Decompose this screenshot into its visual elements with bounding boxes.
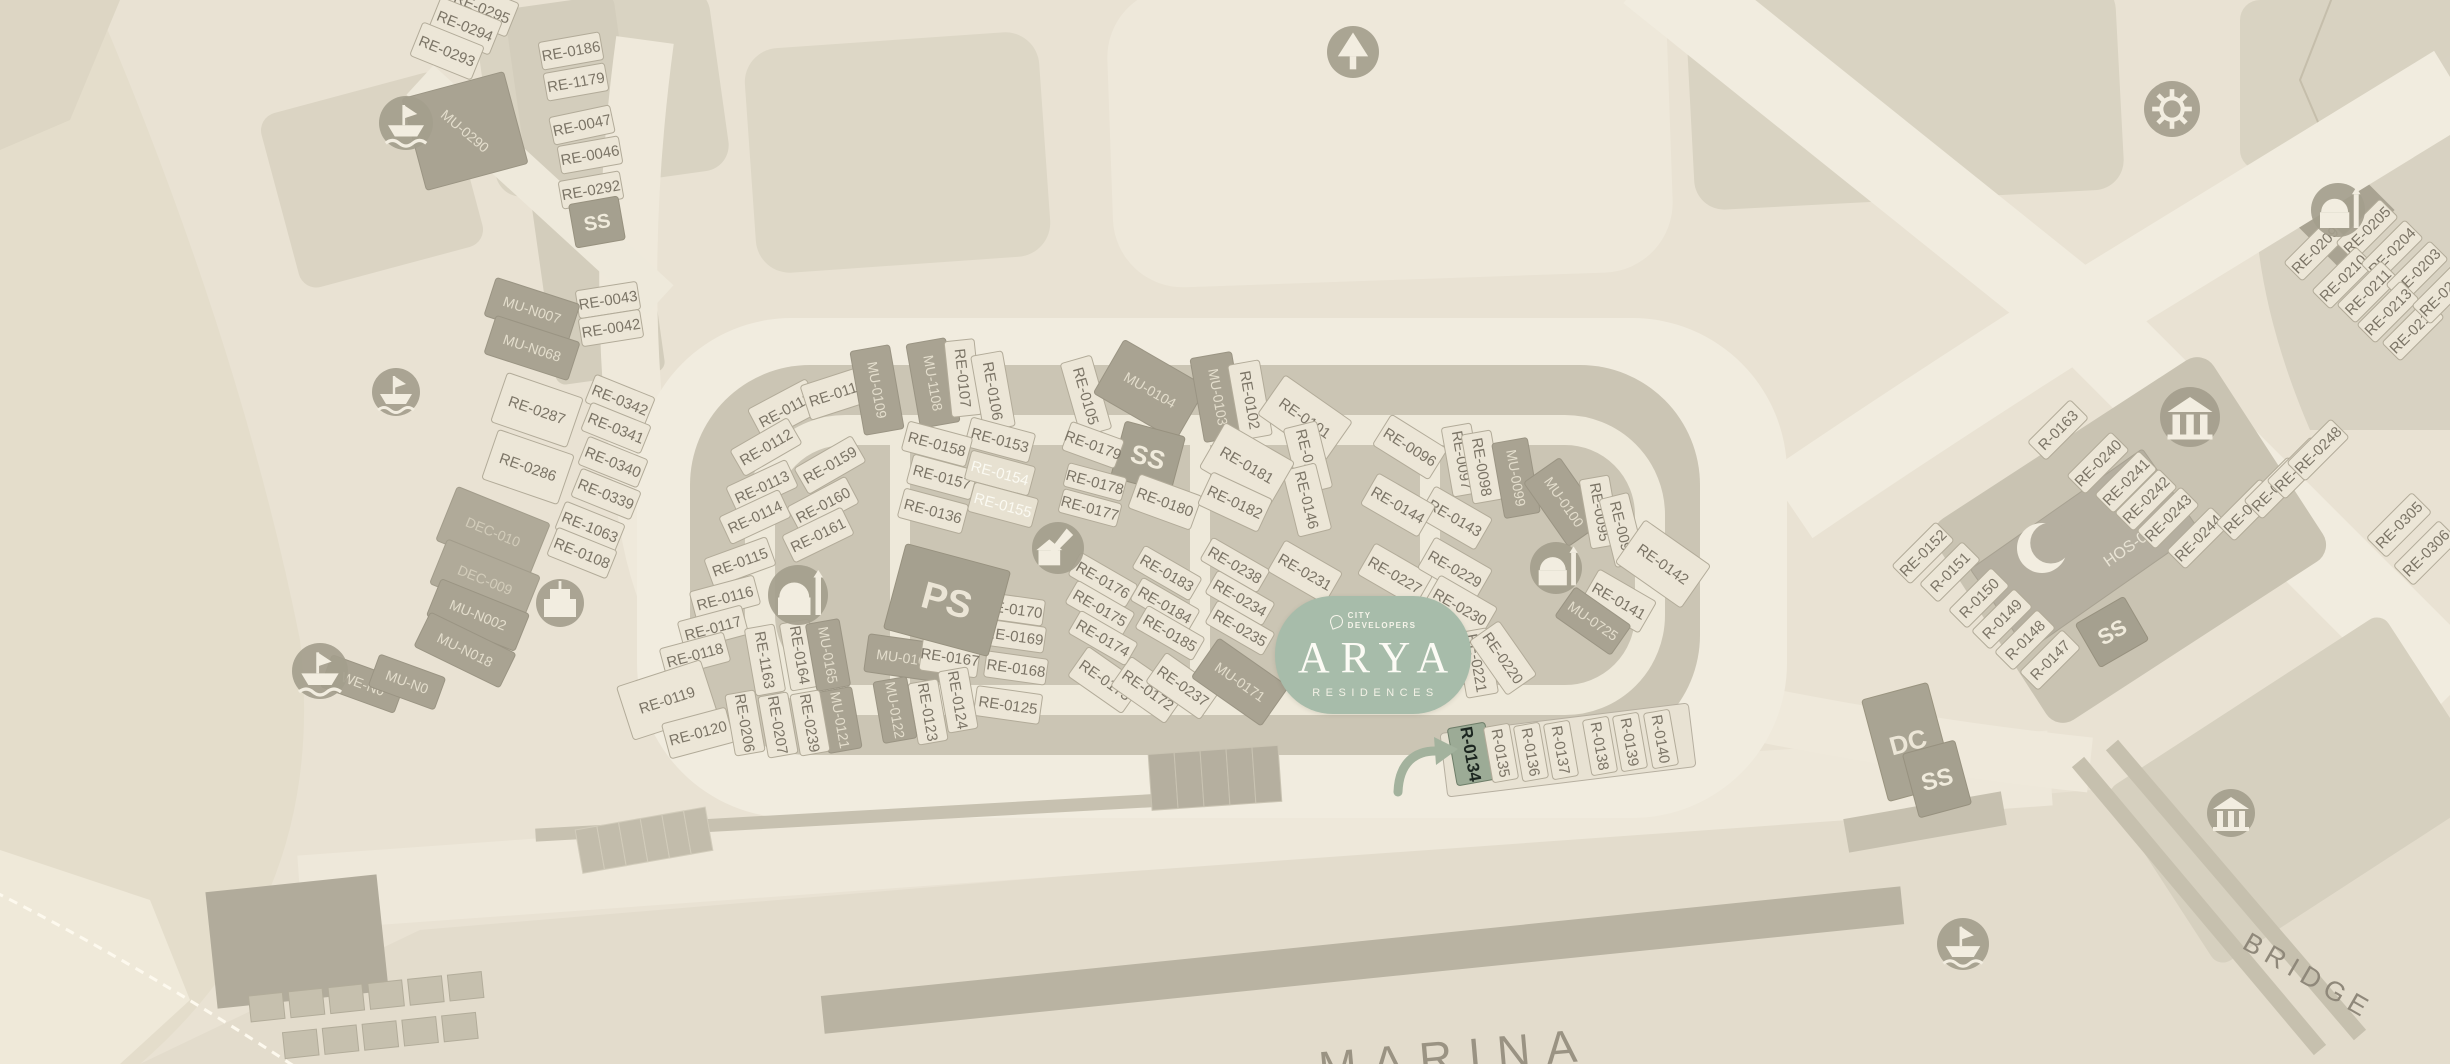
mosque-icon xyxy=(1530,542,1582,594)
institution-icon xyxy=(2207,789,2255,837)
marina-icon xyxy=(292,643,348,699)
project-subtitle: RESIDENCES xyxy=(1312,687,1439,699)
plot-ss-8[interactable]: SS xyxy=(569,196,626,248)
developer-name-line2: DEVELOPERS xyxy=(1348,621,1417,631)
marina-icon xyxy=(1937,918,1989,970)
marina-icon xyxy=(372,368,420,416)
park-icon xyxy=(1327,26,1379,78)
city-developers-logo-icon xyxy=(1328,613,1345,630)
mosque-icon xyxy=(2311,183,2365,237)
masterplan-map[interactable]: RE-0295RE-0294RE-0293RE-0186RE-1179RE-00… xyxy=(0,0,2450,1064)
institution-icon xyxy=(2160,387,2220,447)
project-name: ARYA xyxy=(1298,636,1459,680)
arya-residences-badge: CITY DEVELOPERS ARYA RESIDENCES xyxy=(1275,596,1471,714)
building-icon xyxy=(536,579,584,627)
developer-name-line1: CITY xyxy=(1348,611,1417,621)
marina-icon xyxy=(379,96,433,150)
school-icon xyxy=(1032,522,1084,574)
gear-icon xyxy=(2144,81,2200,137)
city-developers-logo: CITY DEVELOPERS xyxy=(1330,611,1417,631)
mosque-icon xyxy=(768,565,828,625)
